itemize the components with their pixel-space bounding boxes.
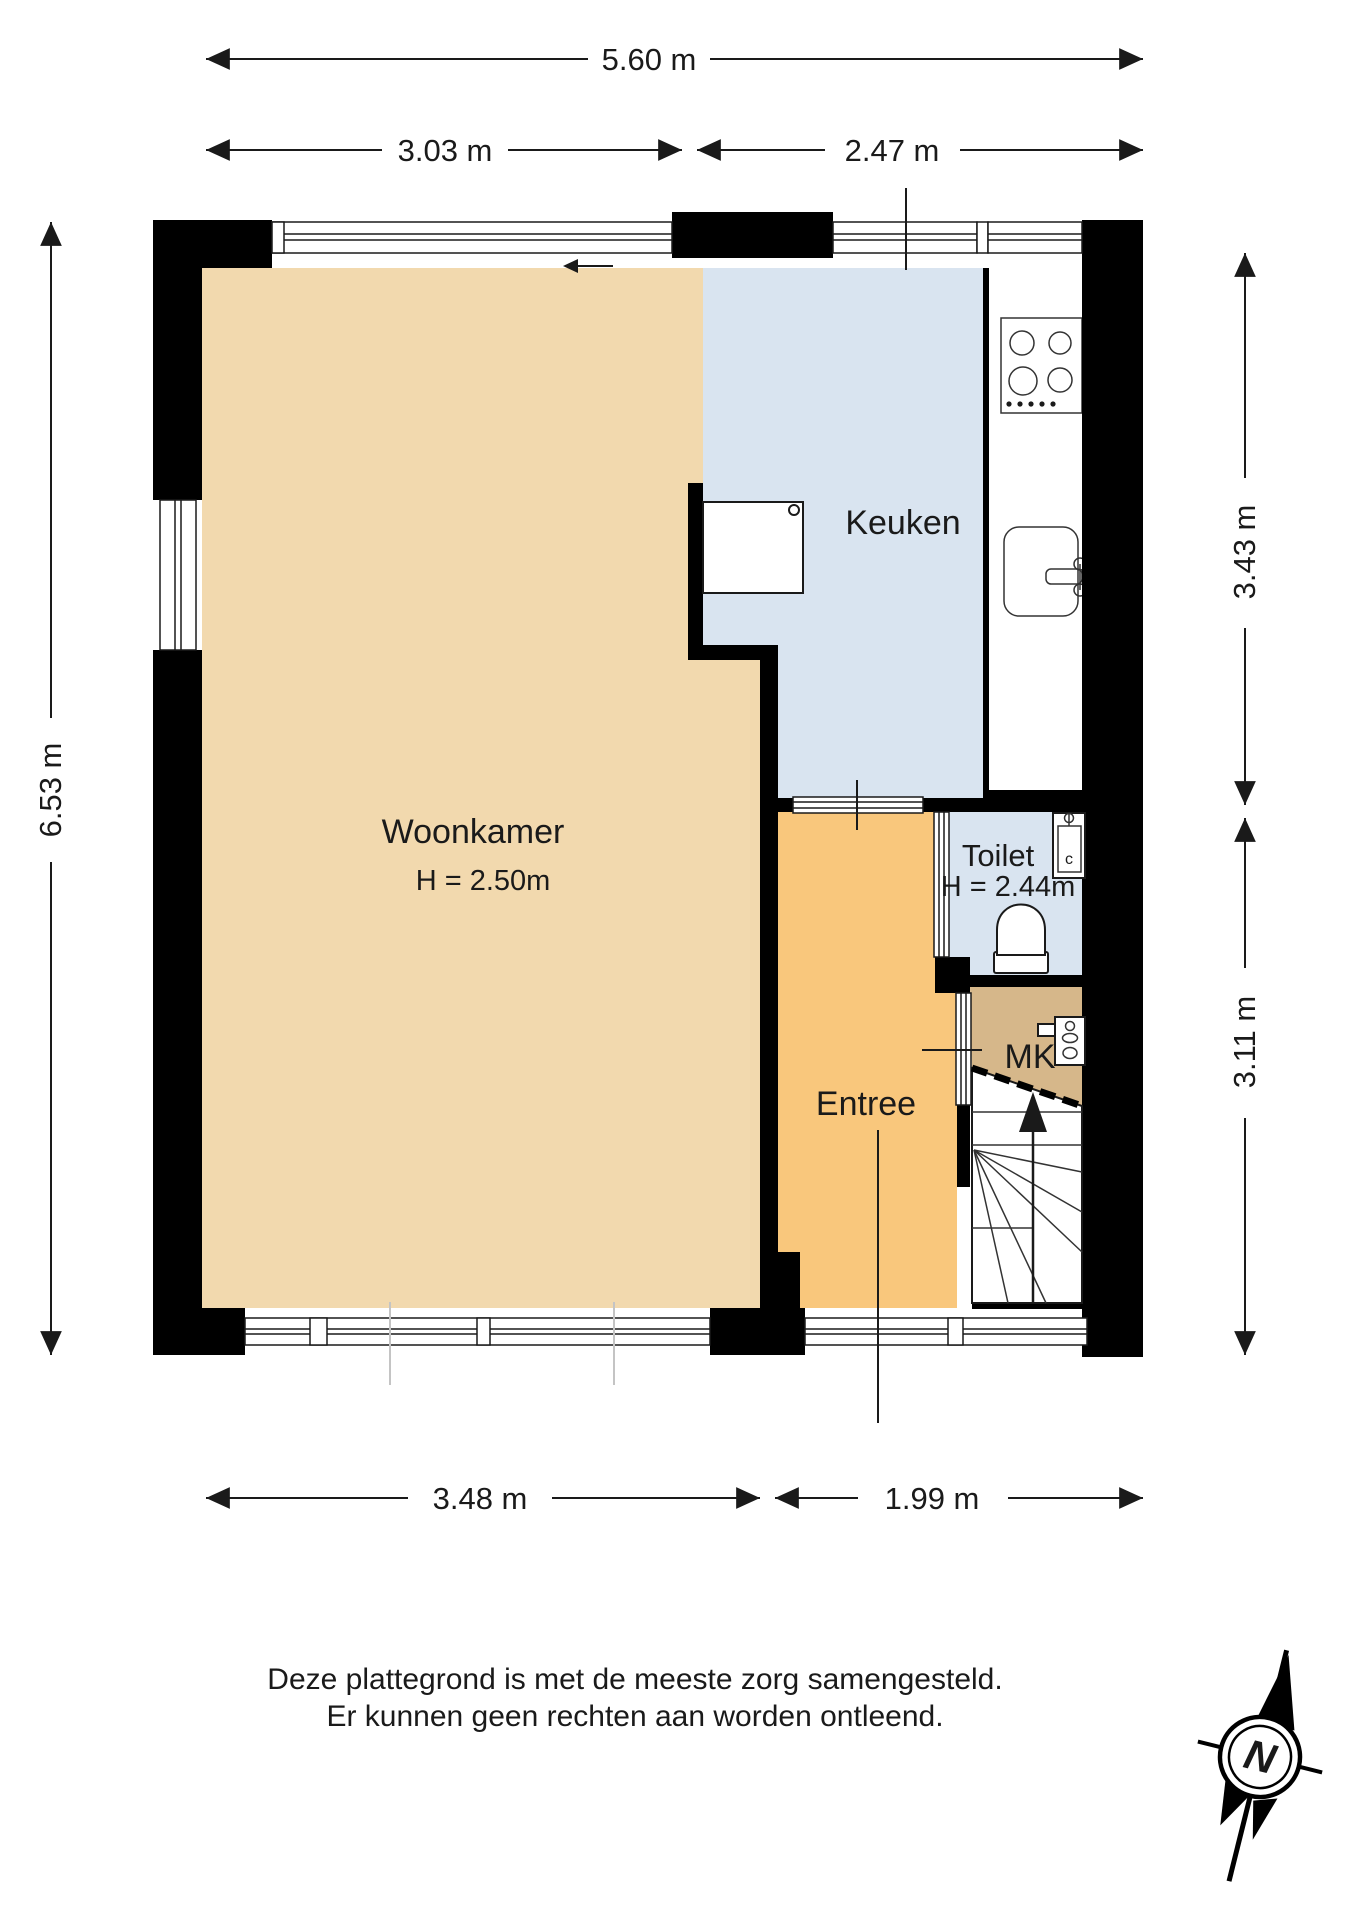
dimension-top-right: 2.47 m [697, 133, 1143, 168]
window-bottom-woonkamer [245, 1318, 710, 1345]
wall-top-middle [672, 212, 833, 258]
woonkamer-height-label: H = 2.50m [416, 865, 551, 897]
woonkamer-floor [202, 268, 760, 1308]
counter-edge-left [983, 268, 989, 792]
dimension-left: 6.53 m [33, 222, 68, 1355]
floorplan-page: c [0, 0, 1358, 1920]
dim-top-right-label: 2.47 m [845, 133, 940, 168]
entree-floor [778, 812, 957, 1308]
wall-mk-left [957, 1105, 970, 1187]
dimension-right-top: 3.43 m [1227, 253, 1262, 805]
dimension-bottom-left: 3.48 m [206, 1481, 760, 1516]
dim-bottom-left-label: 3.48 m [433, 1481, 528, 1516]
dimension-top-left: 3.03 m [206, 133, 682, 168]
wall-top-left-corner [153, 220, 272, 268]
room-floors [202, 268, 1082, 1308]
toilet-height-label: H = 2.44m [941, 871, 1076, 903]
dim-right-top-label: 3.43 m [1227, 505, 1262, 600]
toilet-sink-icon: c [1053, 813, 1085, 878]
wall-left-lower [153, 650, 202, 1308]
window-bottom-entree [805, 1318, 1087, 1345]
toilet-label: Toilet [962, 838, 1035, 873]
door-hinge-icon [789, 505, 799, 515]
mk-label: MK [1005, 1038, 1056, 1076]
wall-bottom-left-corner [153, 1308, 245, 1355]
wall-keuken-entree-a [771, 798, 793, 812]
sink-tap-label: c [1065, 851, 1073, 868]
dim-top-total-label: 5.60 m [602, 42, 697, 77]
dimension-right-bottom: 3.11 m [1227, 818, 1262, 1355]
wall-bottom-middle [710, 1308, 805, 1355]
wall-keuken-entree-b [923, 798, 948, 812]
kitchen-counter [983, 268, 1086, 798]
disclaimer: Deze plattegrond is met de meeste zorg s… [267, 1663, 1002, 1733]
wall-woonkamer-entree-foot [760, 1252, 800, 1308]
dim-top-left-label: 3.03 m [398, 133, 493, 168]
door-leaf-keuken [703, 502, 803, 593]
dim-bottom-right-label: 1.99 m [885, 1481, 980, 1516]
disclaimer-line-2: Er kunnen geen rechten aan worden ontlee… [326, 1700, 943, 1733]
compass-icon: N [1167, 1635, 1349, 1897]
woonkamer-label: Woonkamer [382, 813, 565, 851]
disclaimer-line-1: Deze plattegrond is met de meeste zorg s… [267, 1663, 1002, 1696]
wall-toilet-top [948, 798, 1082, 812]
toilet-bowl-icon [994, 905, 1048, 974]
wall-elbow [688, 645, 778, 660]
wall-woonkamer-keuken [688, 483, 703, 645]
dimension-bottom-right: 1.99 m [775, 1481, 1143, 1516]
dimension-top-total: 5.60 m [206, 42, 1143, 77]
keuken-label: Keuken [845, 504, 960, 542]
staircase [972, 1068, 1082, 1303]
counter-edge-bottom [983, 790, 1082, 798]
wall-bottom-right-corner [1087, 1310, 1143, 1357]
entree-label: Entree [816, 1085, 916, 1123]
floorplan-canvas: c [0, 0, 1358, 1920]
wall-woonkamer-entree [760, 660, 778, 1252]
window-top-keuken [833, 222, 1082, 253]
window-top-woonkamer [272, 222, 672, 253]
wall-toilet-bottom [935, 975, 1082, 987]
dim-left-label: 6.53 m [33, 743, 68, 838]
window-left [160, 500, 196, 650]
dim-right-bottom-label: 3.11 m [1227, 996, 1262, 1088]
wall-right [1082, 220, 1143, 1357]
